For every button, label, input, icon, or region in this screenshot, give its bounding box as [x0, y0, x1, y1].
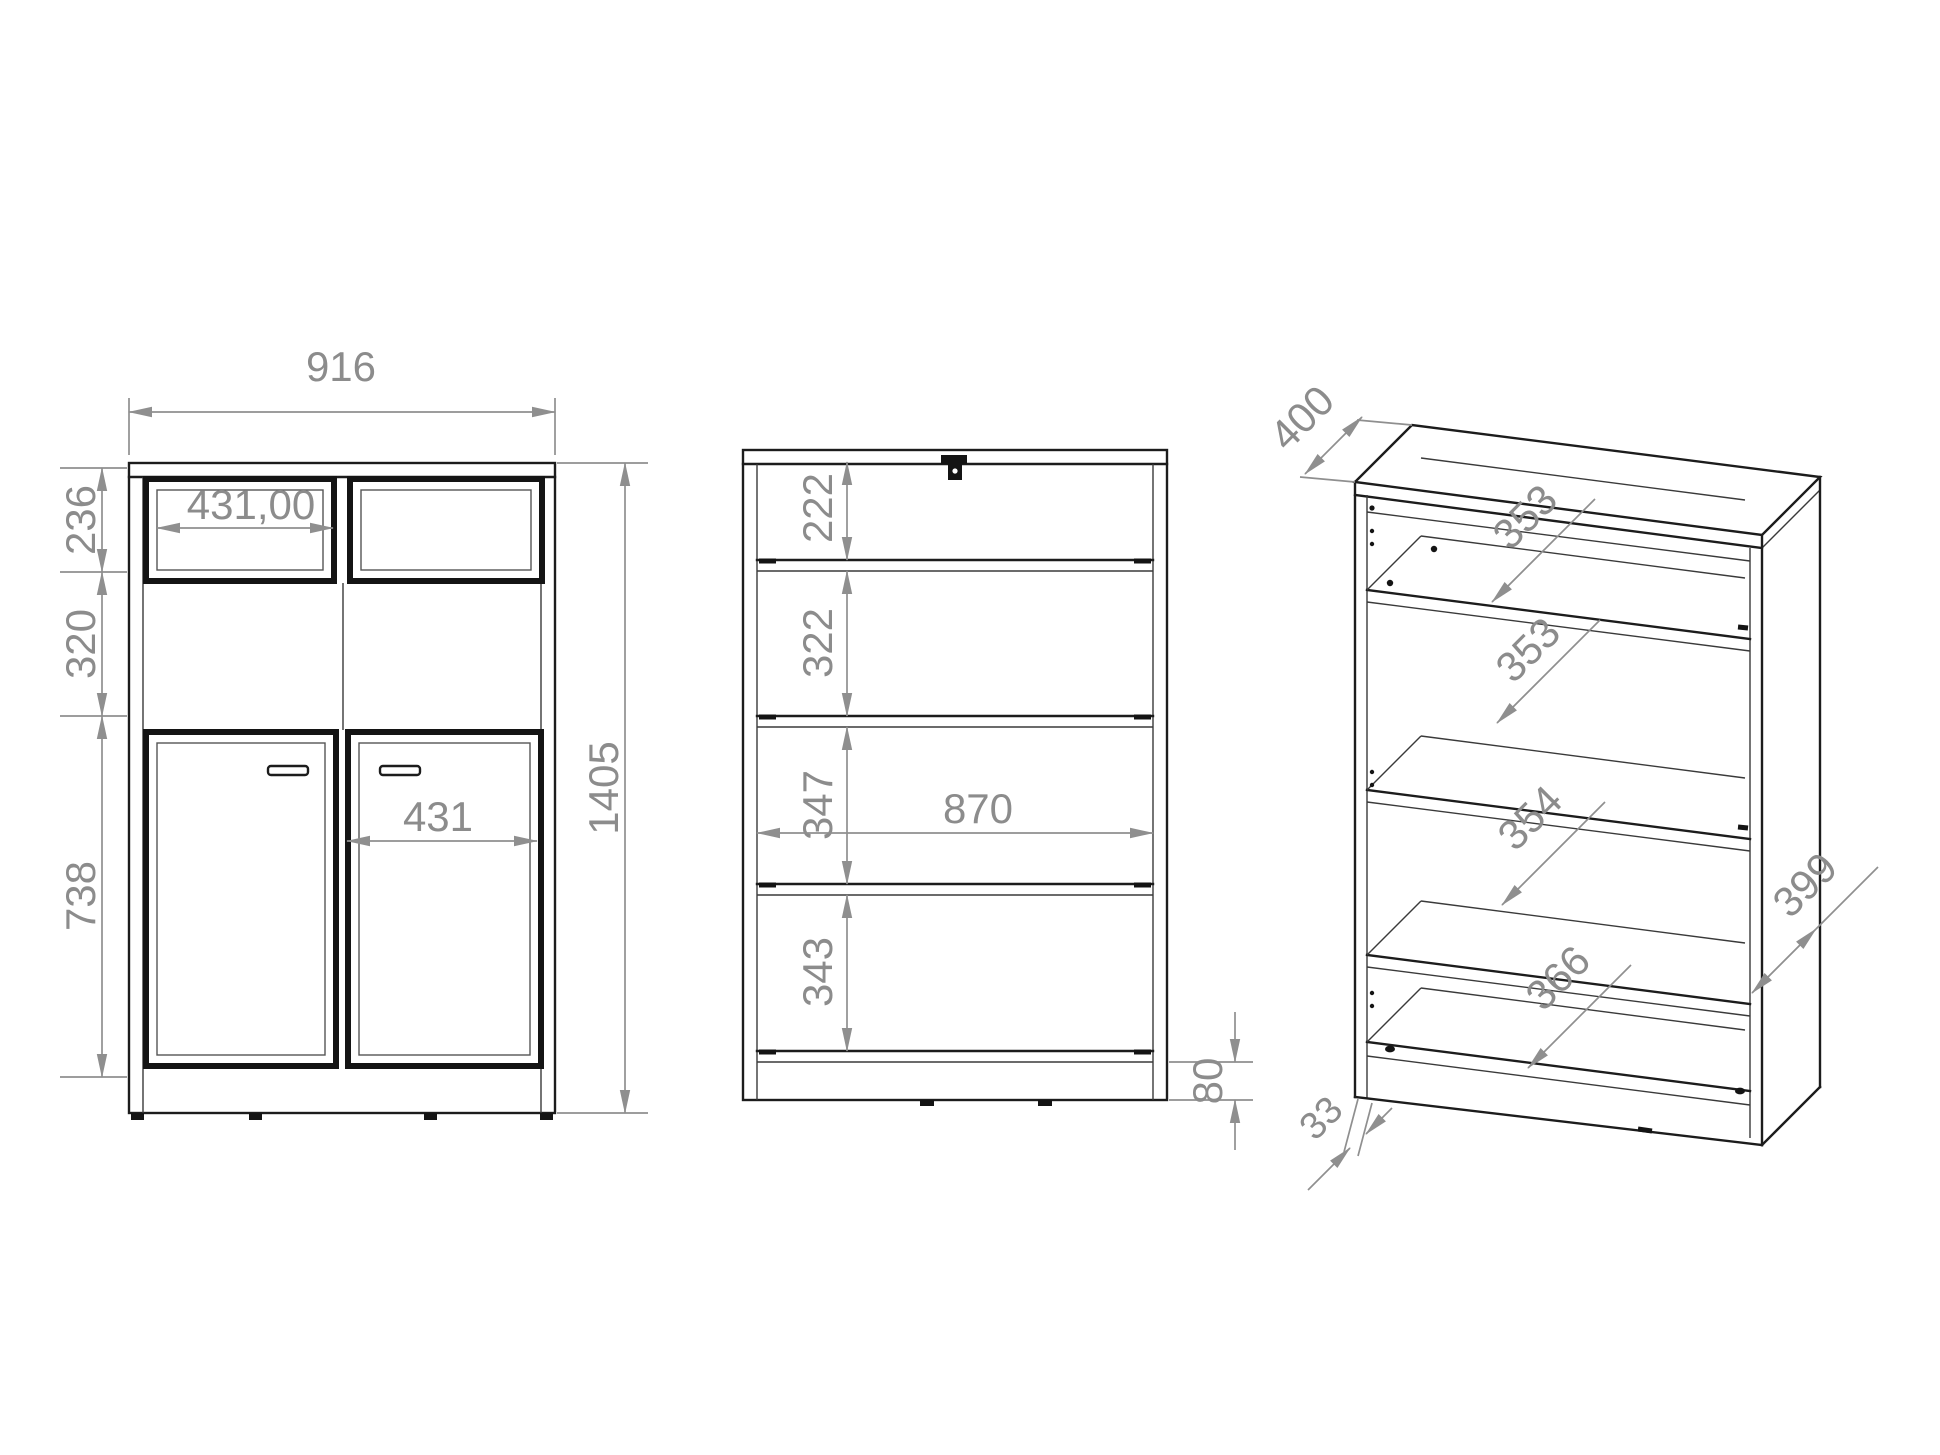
front-lower-door-left [146, 732, 336, 1066]
dim-front-overall-width: 916 [129, 343, 555, 455]
section-347-label: 347 [794, 770, 841, 840]
dim-perspective-top-depth: 400 [1260, 376, 1412, 482]
perspective-side-depth-label: 399 [1763, 843, 1846, 926]
dim-front-height-chain: 236 320 738 [57, 468, 127, 1077]
perspective-base-inset-label: 33 [1292, 1089, 1352, 1149]
section-343-label: 343 [794, 937, 841, 1007]
section-222-label: 222 [794, 473, 841, 543]
perspective-top-depth-label: 400 [1260, 376, 1343, 459]
perspective-shelf2-depth-label: 353 [1486, 608, 1569, 691]
front-segment-236-label: 236 [57, 485, 104, 555]
dim-section-height-chain: 222 322 347 343 [794, 462, 847, 1051]
perspective-bottom-shelf-depth-label: 366 [1516, 936, 1599, 1019]
dim-perspective-side-depth: 399 [1752, 843, 1878, 993]
drawing-svg: 916 236 320 738 1405 431,00 [0, 0, 1940, 1455]
section-322-label: 322 [794, 608, 841, 678]
dim-perspective-base-inset: 33 [1292, 1089, 1392, 1190]
front-segment-738-label: 738 [57, 861, 104, 931]
dim-perspective-shelf-depths: 353 353 354 366 [1483, 475, 1631, 1068]
dim-section-base-height: 80 [1169, 1012, 1253, 1150]
perspective-view: 400 353 353 354 366 399 33 [1260, 376, 1878, 1190]
dim-front-bottom-door-width: 431 [347, 793, 537, 841]
door-handle-left [268, 766, 308, 775]
front-segment-320-label: 320 [57, 609, 104, 679]
front-top-door-width-label: 431,00 [187, 481, 315, 528]
front-overall-width-label: 916 [306, 343, 376, 390]
section-interior-width-label: 870 [943, 785, 1013, 832]
section-top-bracket [941, 455, 967, 480]
dim-front-top-door-width: 431,00 [157, 481, 333, 528]
dim-front-overall-height: 1405 [557, 463, 648, 1113]
section-view: 222 322 347 343 870 80 [743, 450, 1253, 1150]
perspective-shelf3-depth-label: 354 [1488, 776, 1571, 859]
front-cabinet-outline [129, 463, 555, 1113]
front-overall-height-label: 1405 [580, 741, 627, 834]
front-upper-door-right [350, 479, 542, 581]
door-handle-right [380, 766, 420, 775]
perspective-carcass [1355, 425, 1820, 1145]
front-view: 916 236 320 738 1405 431,00 [57, 343, 648, 1120]
front-lower-door-right [348, 732, 541, 1066]
technical-drawing-canvas: 916 236 320 738 1405 431,00 [0, 0, 1940, 1455]
front-bottom-door-width-label: 431 [403, 793, 473, 840]
section-base-height-label: 80 [1184, 1058, 1231, 1105]
